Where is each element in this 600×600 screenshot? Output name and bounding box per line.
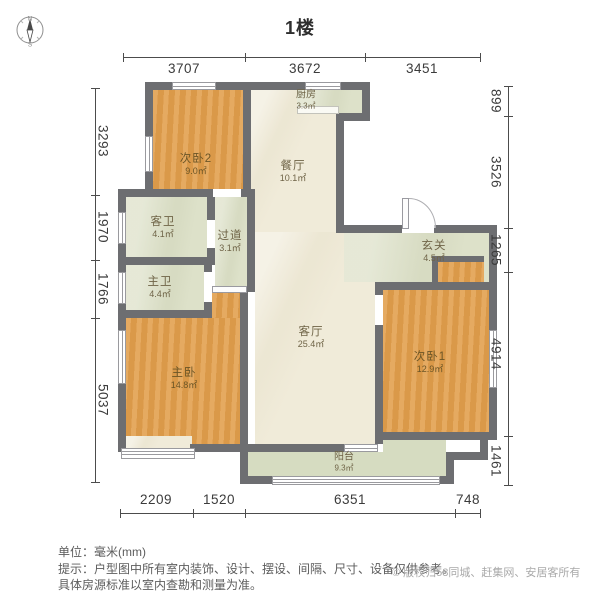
entry-door-swing-arc	[409, 198, 436, 228]
master-bathroom-door-opening	[204, 272, 212, 302]
wall	[118, 257, 215, 265]
dim-left-3: 1766	[96, 273, 111, 305]
dim-tick	[123, 53, 124, 62]
room-label-hallway: 过道 3.1㎡	[218, 230, 243, 254]
dim-tick	[245, 509, 246, 518]
dim-right-4: 4914	[489, 338, 504, 370]
balcony-window	[272, 476, 440, 485]
dim-top-1: 3707	[168, 61, 200, 76]
compass-icon: N S	[11, 11, 49, 49]
room-label-bedroom2: 次卧2 9.0㎡	[180, 153, 212, 177]
wall	[336, 113, 344, 233]
dim-tick	[504, 116, 513, 117]
dim-tick	[504, 485, 513, 486]
dim-tick	[504, 228, 513, 229]
floor-plan: 1楼 N S	[0, 0, 600, 600]
dim-tick	[91, 195, 100, 196]
dim-tick	[504, 272, 513, 273]
room-label-bedroom1: 次卧1 12.9㎡	[414, 351, 446, 375]
room-label-balcony: 阳台 9.3㎡	[334, 452, 354, 473]
dim-bottom-4: 748	[456, 492, 480, 507]
dim-tick	[480, 53, 481, 62]
room-label-living: 客厅 25.4㎡	[298, 326, 325, 350]
room-label-guest-bath: 客卫 4.1㎡	[151, 216, 176, 240]
dim-top-2: 3672	[289, 61, 321, 76]
dim-tick	[91, 482, 100, 483]
room-label-master-bath: 主卫 4.4㎡	[148, 276, 173, 300]
wall	[375, 282, 497, 290]
page-title: 1楼	[0, 14, 600, 40]
bedroom2-side-window	[145, 136, 153, 172]
entry-door-leaf	[402, 198, 409, 229]
compass-north-label: N	[28, 16, 33, 23]
master-bathroom-window	[118, 272, 126, 304]
room-label-entryway: 玄关 4.5㎡	[422, 240, 447, 264]
dim-tick	[455, 509, 456, 518]
dim-tick	[120, 509, 121, 518]
guest-bathroom-door-opening	[207, 220, 215, 248]
dim-tick	[480, 509, 481, 518]
dim-left-1: 3293	[96, 125, 111, 157]
dim-tick	[193, 509, 194, 518]
wall	[240, 444, 344, 452]
master-bedroom-door	[212, 286, 247, 293]
wall	[118, 310, 212, 318]
room-label-dining: 餐厅 10.1㎡	[280, 160, 307, 184]
dim-tick	[365, 53, 366, 62]
bedroom2-door-opening	[213, 189, 241, 197]
unit-note: 单位：毫米(mm)	[58, 544, 454, 561]
bay-window	[121, 448, 195, 459]
dimension-line-bottom	[120, 513, 481, 514]
bay-window-floor	[126, 436, 192, 448]
dimension-line-top	[123, 57, 481, 58]
dim-right-2: 3526	[489, 156, 504, 188]
dimension-line-right	[508, 86, 509, 486]
dim-tick	[91, 260, 100, 261]
dim-right-1: 899	[489, 89, 504, 113]
dim-bottom-2: 1520	[203, 492, 235, 507]
dim-right-3: 1265	[489, 234, 504, 266]
dim-left-4: 5037	[96, 384, 111, 416]
dim-tick	[91, 88, 100, 89]
master-bedroom-window	[118, 330, 126, 384]
dim-right-5: 1461	[489, 445, 504, 477]
guest-bathroom-window	[118, 212, 126, 244]
room-label-master-bedroom: 主卧 14.8㎡	[171, 367, 198, 391]
wall	[240, 292, 248, 452]
bedroom1-door-opening	[375, 295, 383, 325]
balcony-floor-right	[383, 440, 446, 476]
dim-bottom-3: 6351	[334, 492, 366, 507]
wall	[450, 452, 488, 460]
compass-south-label: S	[28, 42, 33, 49]
bedroom2-window	[172, 82, 216, 90]
dim-tick	[504, 436, 513, 437]
dim-top-3: 3451	[406, 61, 438, 76]
room-label-kitchen: 厨房 3.3㎡	[296, 90, 316, 111]
dim-tick	[245, 53, 246, 62]
dim-tick	[91, 318, 100, 319]
dim-tick	[504, 86, 513, 87]
wall	[247, 189, 255, 292]
wall	[243, 82, 251, 197]
copyright-notice: © 版权归58同城、赶集网、安居客所有	[392, 564, 580, 580]
dim-bottom-1: 2209	[140, 492, 172, 507]
wall	[375, 432, 497, 440]
dim-left-2: 1970	[96, 211, 111, 243]
